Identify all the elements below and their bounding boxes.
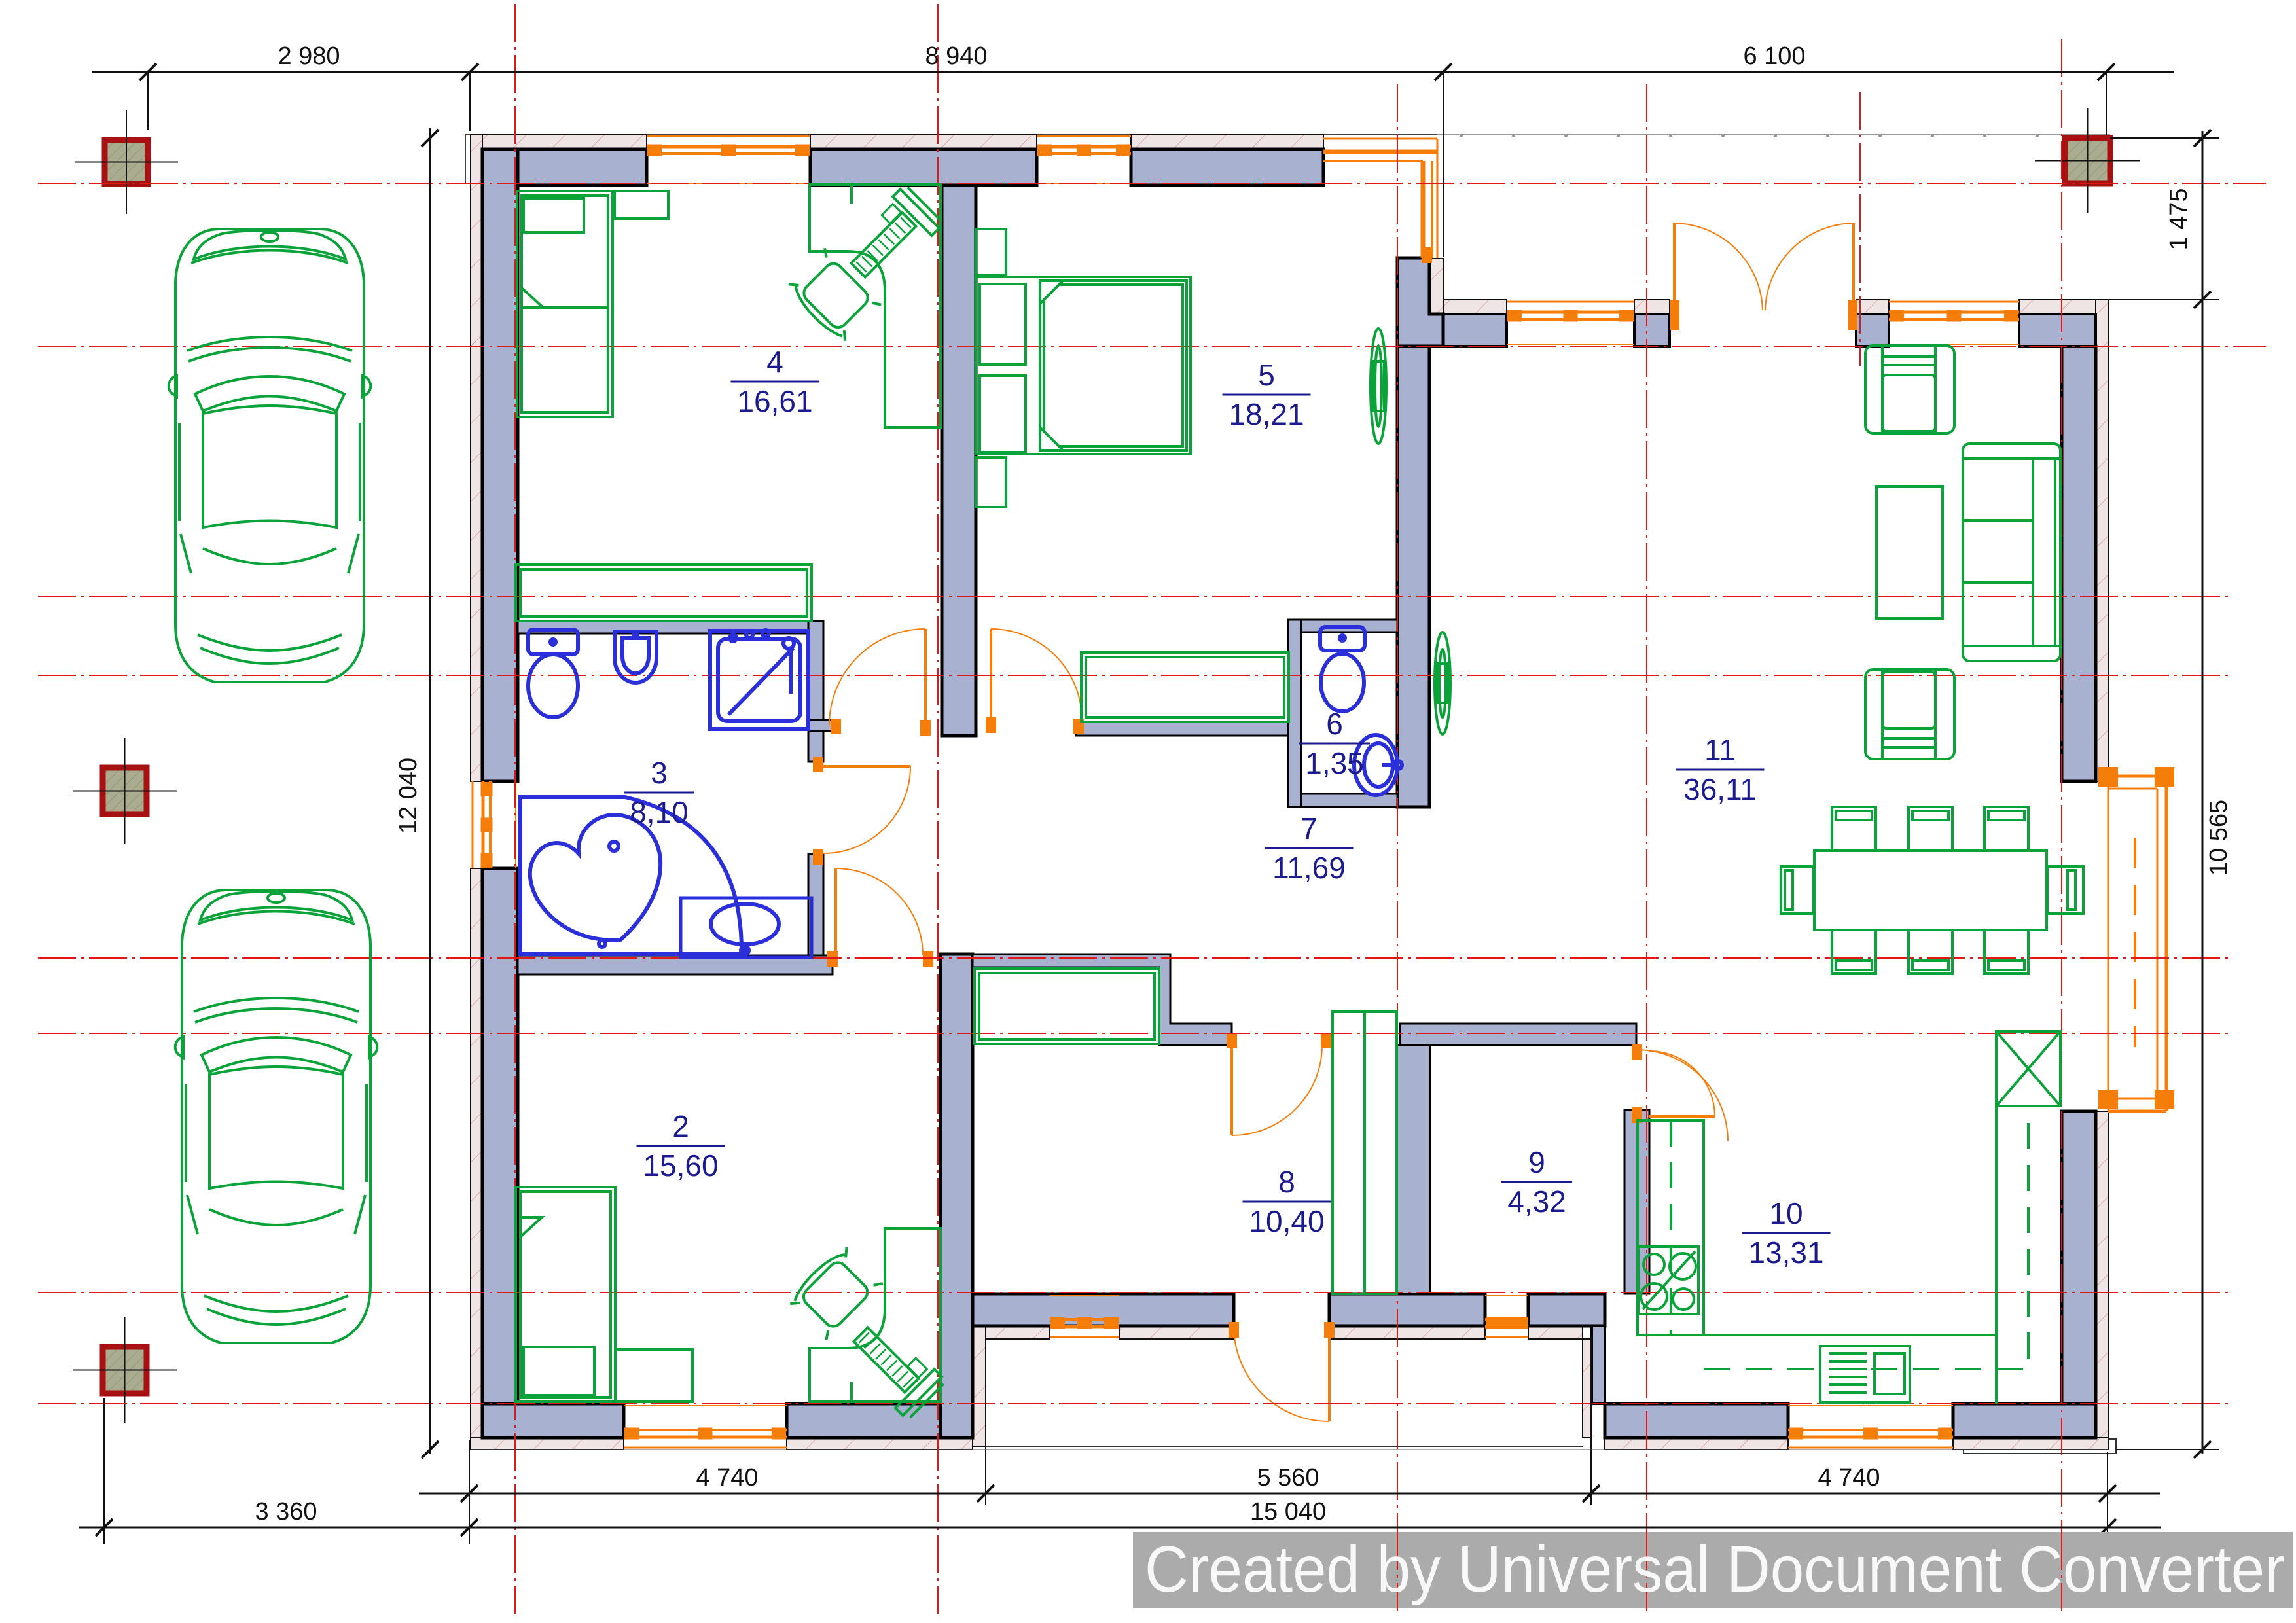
svg-text:3: 3 [651, 756, 668, 790]
svg-text:18,21: 18,21 [1229, 397, 1304, 431]
svg-text:2: 2 [672, 1109, 689, 1143]
svg-text:4 740: 4 740 [1818, 1464, 1880, 1491]
svg-text:15,60: 15,60 [643, 1149, 718, 1183]
svg-text:11,69: 11,69 [1272, 851, 1346, 885]
svg-text:5 560: 5 560 [1257, 1464, 1319, 1491]
svg-text:7: 7 [1300, 811, 1318, 846]
svg-text:1,35: 1,35 [1305, 746, 1364, 780]
svg-text:36,11: 36,11 [1683, 772, 1757, 806]
svg-text:Created by Universal Document: Created by Universal Document Converter [1145, 1533, 2285, 1606]
svg-text:6: 6 [1326, 707, 1343, 741]
svg-text:8 940: 8 940 [925, 43, 987, 70]
svg-text:4: 4 [766, 345, 783, 379]
svg-text:8: 8 [1278, 1165, 1295, 1199]
svg-text:10,40: 10,40 [1249, 1204, 1324, 1238]
svg-text:8,10: 8,10 [630, 795, 689, 829]
svg-text:3 360: 3 360 [255, 1498, 317, 1525]
svg-text:13,31: 13,31 [1748, 1236, 1823, 1270]
svg-text:9: 9 [1528, 1145, 1545, 1179]
svg-text:15 040: 15 040 [1250, 1498, 1326, 1525]
svg-text:2 980: 2 980 [278, 43, 340, 70]
svg-text:10: 10 [1769, 1196, 1803, 1230]
svg-text:5: 5 [1258, 358, 1275, 392]
svg-text:6 100: 6 100 [1743, 43, 1805, 70]
svg-text:12 040: 12 040 [395, 758, 422, 834]
svg-text:16,61: 16,61 [737, 384, 812, 418]
svg-text:4 740: 4 740 [696, 1464, 758, 1491]
svg-text:1 475: 1 475 [2165, 188, 2193, 250]
svg-text:11: 11 [1704, 733, 1736, 767]
svg-text:4,32: 4,32 [1507, 1185, 1566, 1219]
svg-text:10 565: 10 565 [2205, 800, 2233, 876]
